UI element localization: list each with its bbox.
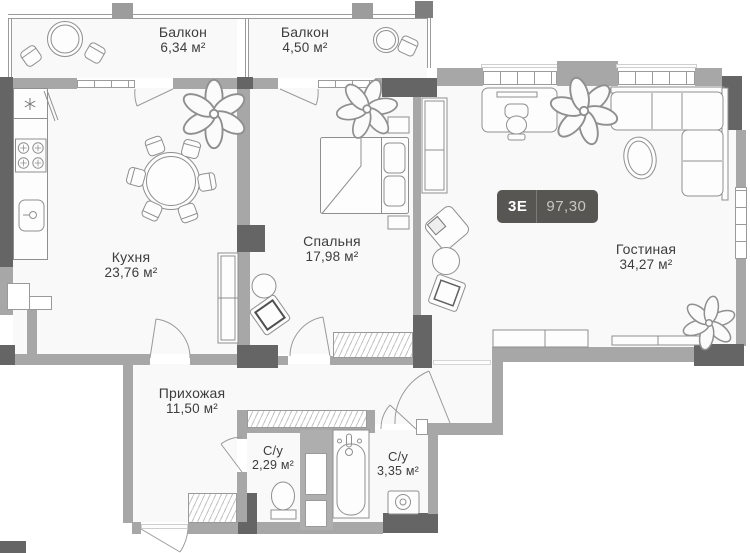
wall-segment: [695, 68, 722, 86]
wall-corner-block: [237, 225, 265, 252]
room-name: С/у: [263, 443, 283, 458]
room-label-balcony-left: Балкон 6,34 м²: [159, 24, 207, 56]
bedroom-window: [318, 80, 375, 88]
room-label-bathroom-large: С/у 3,35 м²: [377, 449, 419, 479]
wall-corner-block: [413, 315, 432, 368]
balcony-divider-glazing: [245, 19, 249, 78]
room-area: 11,50 м²: [166, 401, 218, 417]
room-area: 17,98 м²: [306, 249, 359, 265]
room-label-kitchen: Кухня 23,76 м²: [105, 249, 158, 281]
room-name: Кухня: [112, 249, 150, 265]
wall-segment: [413, 97, 421, 315]
wall-corner-block: [0, 541, 26, 553]
wall-segment: [173, 78, 237, 89]
room-area: 34,27 м²: [620, 257, 673, 273]
balcony-pillar: [112, 3, 133, 18]
wall-segment: [27, 310, 37, 355]
wall-segment: [13, 78, 77, 89]
wall-segment: [736, 130, 746, 187]
badge-divider: [536, 190, 537, 223]
living-room-window: [483, 71, 557, 85]
balcony-right-floor: [249, 19, 427, 78]
wall-segment: [437, 68, 483, 86]
wall-segment: [428, 430, 438, 514]
entrance-threshold: [141, 524, 188, 529]
balcony-pillar: [352, 3, 373, 18]
wall-segment: [190, 354, 237, 365]
room-name: С/у: [388, 449, 408, 464]
apartment-type: 3Е: [508, 198, 527, 215]
room-label-bedroom: Спальня 17,98 м²: [303, 233, 361, 265]
wall-segment: [503, 347, 694, 362]
floor-plan: Балкон 6,34 м² Балкон 4,50 м² Кухня 23,7…: [0, 0, 750, 553]
closet: [247, 410, 367, 428]
room-label-hallway: Прихожая 11,50 м²: [159, 385, 225, 417]
living-room-window: [618, 71, 695, 85]
room-area: 4,50 м²: [282, 40, 327, 56]
wall-segment: [237, 89, 250, 225]
wall-corner-block: [722, 76, 742, 130]
room-name: Балкон: [281, 24, 329, 40]
hallway-floor: [372, 364, 421, 424]
wall-segment: [0, 77, 13, 267]
wall-segment: [736, 259, 746, 346]
window-sill: [481, 64, 559, 68]
threshold: [433, 360, 491, 365]
wall-corner-block: [237, 77, 253, 89]
utility-niche: [29, 296, 52, 310]
shaft-niche: [305, 500, 327, 527]
room-area: 3,35 м²: [377, 464, 419, 479]
balcony-pillar: [415, 1, 433, 18]
room-label-balcony-right: Балкон 4,50 м²: [281, 24, 329, 56]
room-name: Прихожая: [159, 385, 225, 401]
bedroom-wardrobe: [333, 332, 413, 358]
wall-segment: [237, 252, 250, 345]
wall-segment: [278, 356, 288, 365]
wall-pier: [557, 61, 618, 86]
wall-segment: [237, 472, 247, 522]
room-area: 23,76 м²: [105, 265, 158, 281]
wall-segment: [237, 433, 247, 439]
wall-segment: [367, 410, 375, 433]
room-area: 6,34 м²: [160, 40, 205, 56]
apartment-total-area: 97,30: [546, 198, 586, 215]
room-label-living-room: Гостиная 34,27 м²: [616, 241, 676, 273]
shaft-niche: [305, 453, 327, 495]
wall-corner-block: [0, 345, 15, 365]
bedroom-floor: [250, 88, 413, 354]
window-sill: [616, 64, 697, 68]
wall-segment: [253, 78, 278, 89]
door-jamb: [416, 419, 428, 435]
hallway-wardrobe: [188, 493, 237, 523]
wall-segment: [237, 410, 247, 433]
wall-corner-block: [383, 513, 438, 533]
apartment-type-badge: 3Е 97,30: [497, 190, 598, 223]
wall-segment: [132, 522, 141, 534]
wall-segment: [188, 522, 238, 534]
room-name: Балкон: [159, 24, 207, 40]
wall-corner-block: [237, 345, 278, 368]
balcony-glazing: [8, 19, 12, 77]
kitchen-window: [77, 80, 135, 88]
balcony-glazing: [427, 18, 431, 68]
wall-corner-block: [694, 344, 744, 366]
room-name: Гостиная: [616, 241, 676, 257]
wall-segment: [492, 347, 503, 435]
wall-corner-block: [382, 78, 437, 97]
living-room-side-window: [735, 187, 747, 259]
kitchen-floor: [13, 88, 237, 354]
utility-niche: [7, 283, 30, 310]
room-label-bathroom-small: С/у 2,29 м²: [252, 443, 294, 473]
room-name: Спальня: [303, 233, 361, 249]
room-area: 2,29 м²: [252, 458, 294, 473]
wall-segment: [123, 364, 133, 523]
